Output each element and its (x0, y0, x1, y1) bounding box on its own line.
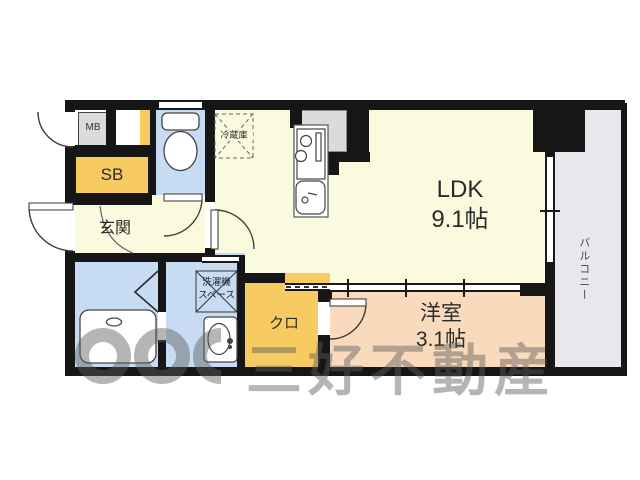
door-leaf-hall-ldk (211, 210, 218, 249)
closet-label: クロ (256, 315, 312, 334)
ldk-size: 9.1帖 (395, 205, 525, 235)
washbasin-icon (204, 317, 237, 362)
door-arc-mb (38, 112, 73, 147)
entrance-label: 玄関 (86, 219, 144, 239)
balcony-label: バルコニー (576, 224, 590, 314)
door-leaf-western (330, 299, 366, 306)
bathtub-icon (80, 310, 156, 363)
western-size: 3.1帖 (380, 327, 502, 353)
ldk-label: LDK 9.1帖 (395, 175, 525, 235)
refrigerator-label: 冷蔵庫 (215, 130, 253, 141)
door-arc-entrance (29, 207, 73, 251)
ldk-name: LDK (395, 175, 525, 205)
door-leaf-toilet (164, 194, 202, 201)
door-leaf-entrance (29, 203, 73, 210)
door-arc-toilet (164, 198, 202, 236)
toilet-icon (162, 113, 199, 171)
door-arc-western (330, 303, 366, 339)
washer-space-label: 洗濯機 スペース (194, 277, 239, 303)
washer-space-line2: スペース (194, 290, 239, 303)
floor-plan: LDK 9.1帖 洋室 3.1帖 玄関 クロ バルコニー SB MB 冷蔵庫 洗… (0, 0, 640, 480)
bifold-door-bathroom (135, 271, 158, 312)
western-room-label: 洋室 3.1帖 (380, 301, 502, 354)
shoe-box-label: SB (74, 164, 150, 185)
meter-box-label: MB (78, 122, 108, 135)
door-arc-hall-ldk (215, 210, 254, 249)
kitchen-icon (294, 125, 328, 217)
fixtures-and-doors (0, 0, 640, 480)
washer-space-line1: 洗濯機 (194, 277, 239, 290)
western-name: 洋室 (380, 301, 502, 327)
